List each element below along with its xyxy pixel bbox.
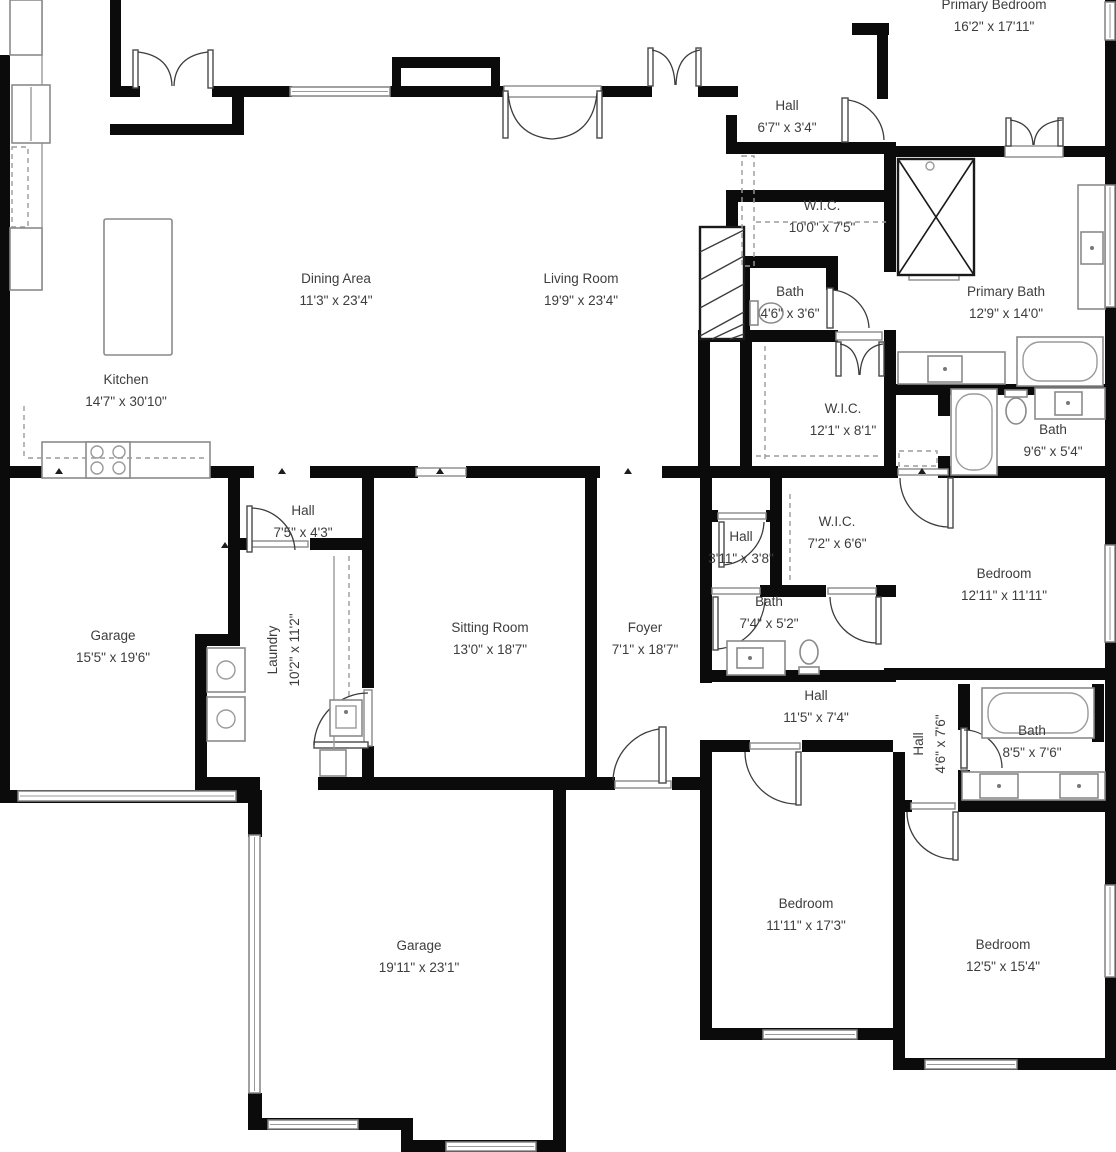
powder-bath-fixtures: [750, 301, 783, 325]
stove-icon: [86, 442, 130, 478]
french-door-living-icon: [503, 86, 602, 139]
washer-icon: [207, 648, 245, 692]
dryer-icon: [207, 697, 245, 741]
linen-shelf-dashes: [899, 451, 937, 466]
bathtub-icon: [982, 688, 1094, 738]
floor-plan-drawing: [0, 0, 1116, 1152]
door-hall-icon: [718, 513, 766, 567]
bath-74-fixtures: [727, 640, 819, 675]
french-door-primary-bath-icon: [1005, 118, 1063, 157]
door-wic2-icon: [828, 588, 881, 644]
door-bedroom3-icon: [907, 803, 958, 860]
primary-bath-fixtures: [898, 159, 1105, 386]
door-powder-bath-icon: [827, 288, 869, 328]
toilet-icon: [799, 640, 819, 674]
french-door-wic-icon: [836, 332, 884, 376]
garage-door-front: [18, 791, 236, 801]
opening-markers: [55, 468, 926, 548]
bath-85-fixtures: [962, 688, 1105, 800]
floor-plan: Primary Bedroom16'2" x 17'11"Hall6'7" x …: [0, 0, 1116, 1152]
bathtub-icon: [951, 389, 997, 475]
pantry-dashes: [12, 147, 28, 227]
french-door-dining-icon: [133, 50, 213, 88]
shower-icon: [898, 159, 974, 275]
bathtub-icon: [1017, 337, 1103, 386]
bath-96-fixtures: [951, 388, 1105, 475]
fireplace: [700, 227, 744, 339]
french-door-living2-icon: [648, 48, 701, 86]
kitchen-island-icon: [104, 219, 172, 355]
door-primary-bedroom-icon: [842, 98, 884, 142]
door-hall-laundry-icon: [247, 506, 308, 552]
toilet-icon: [750, 301, 783, 325]
garage-door-side: [249, 835, 260, 1093]
door-bedroom2-icon: [745, 743, 801, 805]
toilet-icon: [1005, 390, 1027, 424]
front-door-icon: [613, 727, 671, 788]
